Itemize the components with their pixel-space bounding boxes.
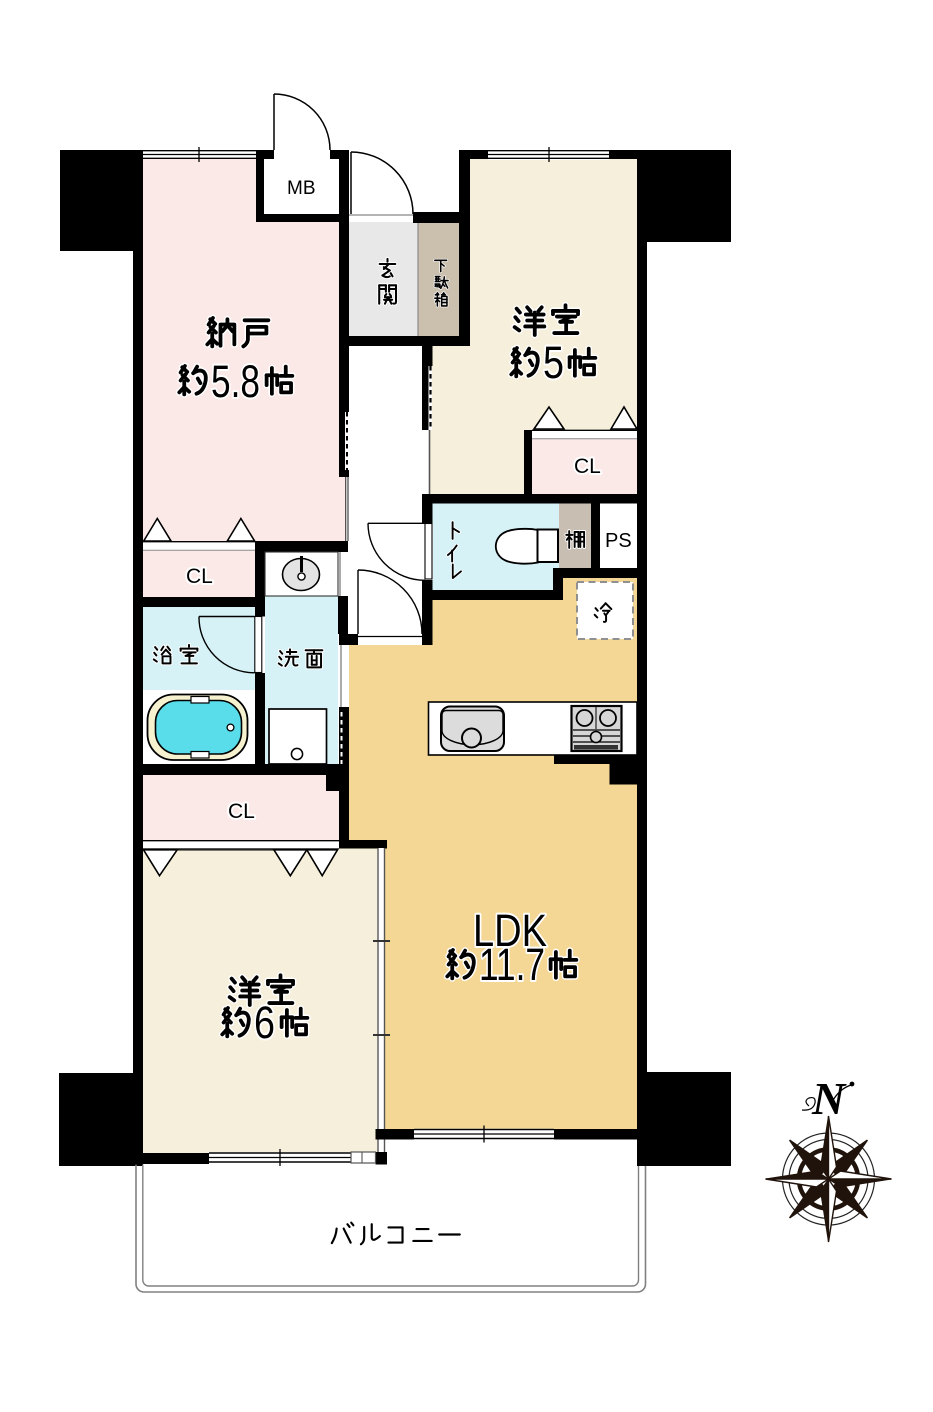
svg-text:6: 6 [254, 997, 275, 1048]
svg-text:CL: CL [186, 565, 213, 588]
svg-text:CL: CL [228, 800, 255, 823]
svg-text:N: N [811, 1073, 847, 1124]
svg-text:5: 5 [543, 337, 564, 388]
svg-text:CL: CL [574, 455, 601, 478]
svg-text:MB: MB [287, 178, 316, 199]
svg-text:PS: PS [605, 530, 632, 552]
svg-text:5.8: 5.8 [211, 356, 260, 407]
svg-text:11.7: 11.7 [479, 939, 545, 990]
